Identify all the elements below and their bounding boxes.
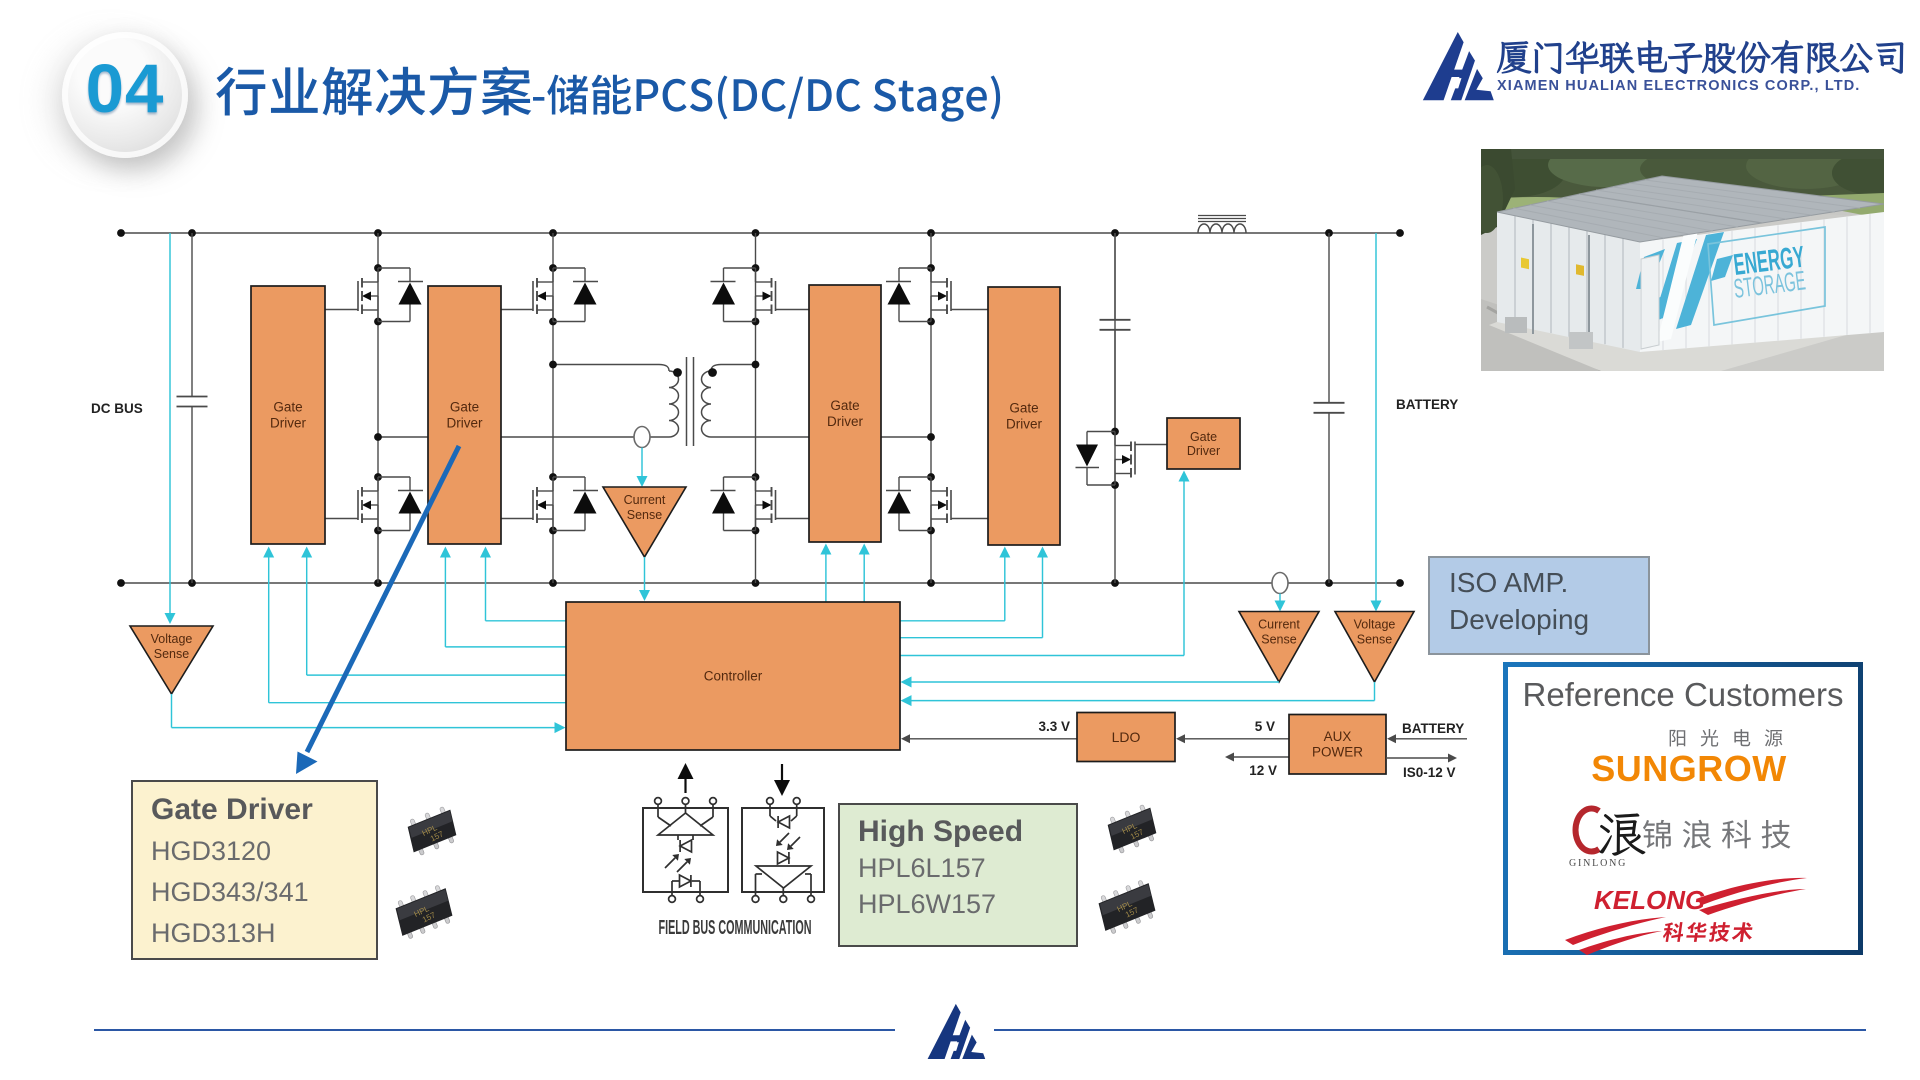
svg-text:12 V: 12 V: [1249, 763, 1277, 778]
svg-text:GINLONG: GINLONG: [1569, 858, 1627, 869]
svg-text:5 V: 5 V: [1255, 719, 1275, 734]
svg-text:Controller: Controller: [704, 669, 763, 684]
svg-text:POWER: POWER: [1312, 745, 1363, 760]
svg-text:Driver: Driver: [270, 416, 307, 431]
svg-text:Voltage: Voltage: [151, 632, 193, 646]
svg-text:Gate: Gate: [273, 400, 302, 415]
svg-text:SUNGROW: SUNGROW: [1591, 748, 1787, 789]
svg-text:Driver: Driver: [827, 414, 864, 429]
svg-text:DC BUS: DC BUS: [91, 401, 143, 416]
svg-text:Voltage: Voltage: [1354, 618, 1396, 632]
svg-text:IS0-12 V: IS0-12 V: [1403, 765, 1456, 780]
svg-text:BATTERY: BATTERY: [1396, 397, 1458, 412]
svg-text:Sense: Sense: [154, 647, 189, 661]
svg-text:Gate: Gate: [450, 400, 479, 415]
svg-text:LDO: LDO: [1112, 729, 1141, 745]
svg-text:KELONG: KELONG: [1594, 885, 1705, 915]
svg-text:Driver: Driver: [1006, 417, 1043, 432]
svg-text:Current: Current: [624, 493, 666, 507]
svg-text:3.3 V: 3.3 V: [1038, 719, 1070, 734]
svg-text:Driver: Driver: [1187, 444, 1220, 458]
svg-text:Gate: Gate: [1009, 401, 1038, 416]
svg-text:Current: Current: [1258, 618, 1300, 632]
svg-text:AUX: AUX: [1324, 729, 1352, 744]
svg-text:Sense: Sense: [1261, 633, 1296, 647]
svg-text:Sense: Sense: [1357, 633, 1392, 647]
svg-text:Gate: Gate: [830, 398, 859, 413]
svg-text:BATTERY: BATTERY: [1402, 721, 1464, 736]
svg-text:FIELD BUS COMMUNICATION: FIELD BUS COMMUNICATION: [659, 917, 812, 939]
svg-text:Driver: Driver: [447, 416, 484, 431]
svg-text:Sense: Sense: [627, 508, 662, 522]
svg-text:Gate: Gate: [1190, 430, 1217, 444]
